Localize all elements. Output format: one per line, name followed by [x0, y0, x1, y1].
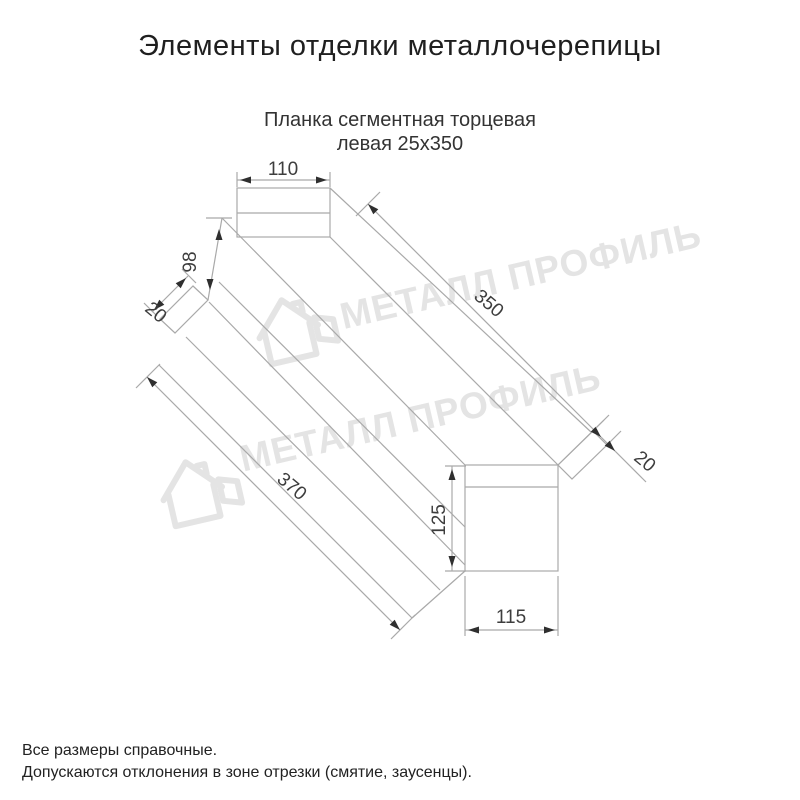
- dim-label-370: 370: [273, 469, 311, 505]
- dim-label-115: 115: [496, 607, 526, 628]
- bottom-end-face: [465, 465, 558, 571]
- footnotes: Все размеры справочные. Допускаются откл…: [22, 740, 472, 784]
- dim-label-20-near: 20: [141, 298, 171, 328]
- dim-near-tab: 20: [141, 269, 196, 328]
- metalprofil-logo-icon: [156, 452, 244, 528]
- technical-drawing: МЕТАЛЛ ПРОФИЛЬ МЕТАЛЛ ПРОФИЛЬ: [0, 0, 800, 800]
- dim-label-110: 110: [268, 159, 298, 180]
- watermark-text: МЕТАЛЛ ПРОФИЛЬ: [236, 356, 605, 479]
- footnote-line1: Все размеры справочные.: [22, 740, 472, 762]
- dim-label-20-far: 20: [630, 447, 660, 477]
- footnote-line2: Допускаются отклонения в зоне отрезки (с…: [22, 762, 472, 784]
- dim-face-height: 125: [429, 466, 466, 571]
- dim-back-height: 98: [180, 218, 232, 290]
- dim-bottom-edge-length: 370: [136, 364, 415, 639]
- far-end-cut-edge: [412, 571, 465, 618]
- dim-label-125: 125: [429, 504, 450, 536]
- dim-bottom-width: 115: [465, 576, 558, 636]
- watermark-upper: МЕТАЛЛ ПРОФИЛЬ: [252, 205, 707, 365]
- watermark-text: МЕТАЛЛ ПРОФИЛЬ: [336, 214, 705, 337]
- product-diagram-page: Элементы отделки металлочерепицы Планка …: [0, 0, 800, 800]
- dim-top-width: 110: [237, 159, 330, 187]
- far-end-tab: [558, 431, 607, 479]
- dim-far-tab: 20: [596, 415, 659, 482]
